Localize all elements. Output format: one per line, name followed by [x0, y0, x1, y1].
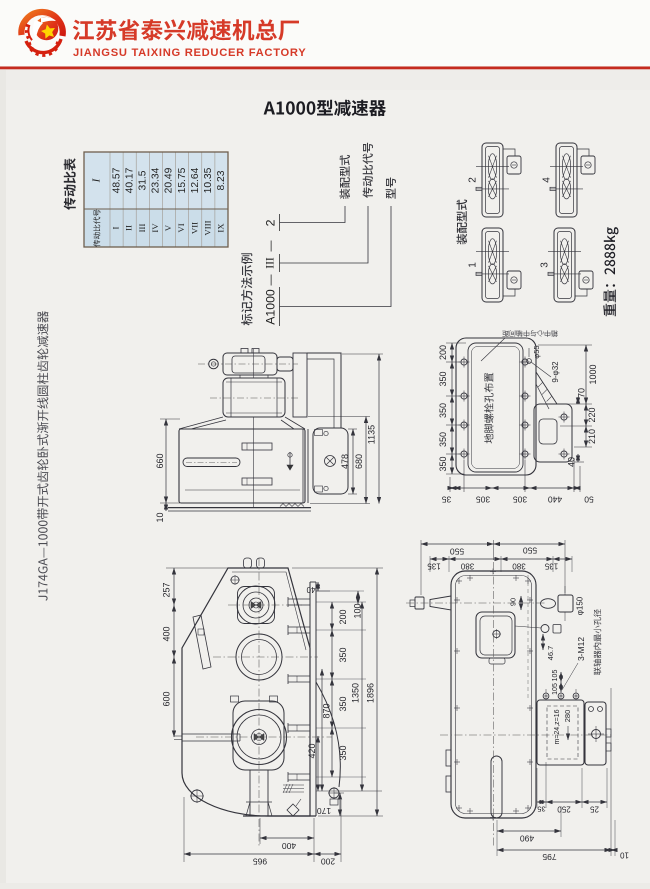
svg-text:40: 40 — [566, 457, 576, 467]
svg-text:1135: 1135 — [366, 425, 376, 444]
svg-text:46.7: 46.7 — [546, 646, 555, 661]
svg-text:φ150: φ150 — [576, 596, 585, 615]
svg-text:440: 440 — [548, 494, 562, 504]
svg-text:I: I — [111, 226, 121, 229]
svg-text:8.23: 8.23 — [216, 170, 227, 190]
svg-text:70: 70 — [576, 388, 586, 398]
svg-text:478: 478 — [340, 454, 350, 469]
svg-text:4: 4 — [542, 177, 553, 183]
svg-text:350: 350 — [438, 456, 448, 471]
svg-text:3: 3 — [540, 262, 551, 268]
svg-text:90: 90 — [508, 598, 517, 606]
svg-text:965: 965 — [253, 856, 267, 866]
svg-text:25: 25 — [590, 804, 599, 813]
svg-text:105: 105 — [552, 683, 559, 695]
svg-text:257: 257 — [161, 582, 171, 597]
svg-text:135: 135 — [544, 561, 558, 570]
svg-text:250: 250 — [557, 804, 571, 813]
svg-text:550: 550 — [450, 546, 464, 556]
svg-text:1: 1 — [468, 262, 479, 268]
svg-text:380: 380 — [512, 561, 526, 570]
svg-text:V: V — [163, 224, 173, 231]
svg-text:VII: VII — [189, 222, 199, 234]
svg-text:200: 200 — [321, 856, 335, 866]
svg-text:10.35: 10.35 — [203, 167, 214, 193]
svg-text:105: 105 — [552, 670, 559, 682]
svg-text:φ55: φ55 — [532, 345, 541, 358]
svg-text:IX: IX — [216, 223, 226, 233]
svg-text:1350: 1350 — [350, 683, 360, 703]
svg-text:2: 2 — [263, 219, 277, 226]
svg-text:m=24,z=16: m=24,z=16 — [554, 709, 561, 744]
svg-text:1000: 1000 — [588, 364, 598, 384]
svg-text:350: 350 — [338, 696, 348, 711]
svg-text:II: II — [124, 225, 134, 231]
svg-text:350: 350 — [338, 745, 348, 760]
svg-text:170: 170 — [317, 806, 331, 816]
svg-text:680: 680 — [354, 454, 364, 469]
svg-text:1896: 1896 — [365, 683, 375, 703]
svg-text:35: 35 — [442, 494, 452, 504]
svg-text:A1000: A1000 — [263, 289, 277, 325]
svg-text:12.64: 12.64 — [190, 167, 201, 193]
svg-text:400: 400 — [161, 626, 171, 641]
svg-text:23.34: 23.34 — [151, 167, 162, 193]
svg-text:380: 380 — [460, 561, 474, 570]
svg-text:JIANGSU TAIXING REDUCER FACTOR: JIANGSU TAIXING REDUCER FACTORY — [73, 47, 306, 59]
svg-text:280: 280 — [563, 710, 572, 723]
svg-text:9-φ32: 9-φ32 — [551, 361, 560, 383]
svg-text:15.75: 15.75 — [177, 167, 188, 193]
svg-text:48.57: 48.57 — [111, 167, 122, 193]
svg-text:40.17: 40.17 — [124, 167, 135, 193]
svg-text:350: 350 — [438, 371, 448, 386]
svg-text:2: 2 — [468, 177, 479, 183]
svg-text:3-M12: 3-M12 — [576, 637, 586, 661]
svg-text:210: 210 — [587, 429, 597, 444]
svg-text:305: 305 — [476, 494, 490, 504]
svg-text:350: 350 — [438, 403, 448, 418]
svg-text:VIII: VIII — [202, 220, 212, 235]
svg-text:35: 35 — [537, 805, 545, 814]
svg-text:660: 660 — [155, 453, 165, 468]
svg-text:400: 400 — [282, 841, 296, 851]
svg-text:III: III — [265, 257, 277, 269]
svg-text:220: 220 — [587, 407, 597, 422]
svg-text:VI: VI — [176, 223, 186, 232]
svg-text:350: 350 — [438, 432, 448, 447]
svg-text:200: 200 — [338, 609, 348, 624]
svg-text:IV: IV — [150, 223, 160, 233]
svg-text:10: 10 — [620, 850, 629, 859]
svg-text:20.49: 20.49 — [164, 167, 175, 193]
svg-text:100: 100 — [352, 603, 362, 618]
svg-text:870: 870 — [321, 703, 331, 718]
svg-text:135: 135 — [427, 561, 441, 570]
svg-text:40: 40 — [306, 585, 315, 594]
svg-text:490: 490 — [520, 833, 534, 843]
svg-text:350: 350 — [338, 647, 348, 662]
svg-text:305: 305 — [513, 494, 527, 504]
svg-text:795: 795 — [542, 852, 556, 862]
svg-text:—: — — [265, 241, 277, 252]
svg-text:600: 600 — [161, 691, 171, 706]
svg-text:10: 10 — [155, 512, 165, 522]
svg-text:550: 550 — [523, 545, 537, 555]
svg-text:420: 420 — [307, 743, 317, 758]
svg-text:31.5: 31.5 — [138, 170, 149, 190]
svg-text:—: — — [265, 275, 277, 286]
svg-text:200: 200 — [438, 345, 448, 360]
svg-text:50: 50 — [584, 494, 594, 504]
svg-text:III: III — [137, 224, 147, 233]
